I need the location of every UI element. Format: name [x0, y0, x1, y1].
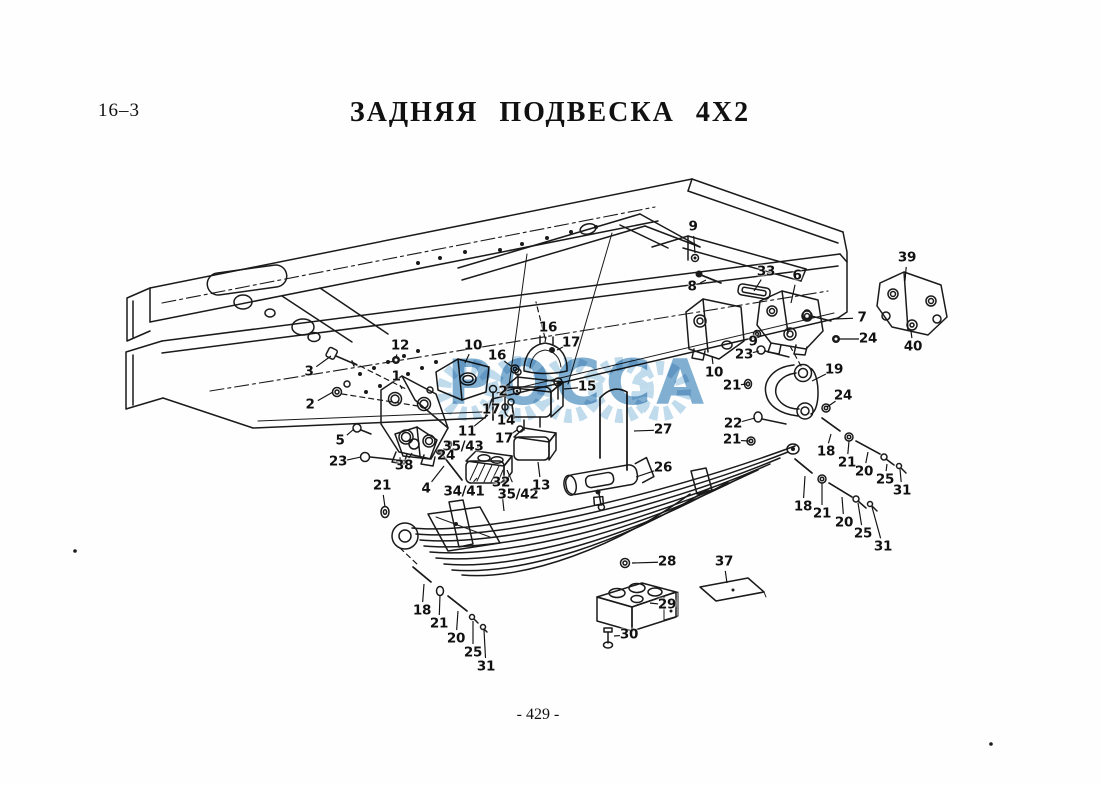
leader-line — [872, 507, 881, 538]
leader-line — [347, 429, 354, 435]
callout-label: 28 — [658, 555, 676, 569]
leader-line — [866, 452, 868, 463]
callout-label: 16 — [539, 321, 557, 335]
callout-label: 3 — [304, 365, 313, 379]
leader-line — [833, 318, 853, 319]
callout-label: 12 — [391, 339, 409, 353]
callout-label: 10 — [464, 339, 482, 353]
catalog-page: 16–3 ЗАДНЯЯ ПОДВЕСКА 4X2 — [0, 0, 1100, 785]
callout-label: 24 — [834, 389, 852, 403]
callout-label: 30 — [620, 628, 638, 642]
callout-label: 21 — [723, 433, 741, 447]
leader-line — [741, 384, 746, 385]
callout-label: 15 — [578, 380, 596, 394]
leader-line — [694, 236, 695, 253]
leader-line — [753, 351, 759, 353]
callout-label: 31 — [874, 540, 892, 554]
callout-label: 5 — [335, 434, 344, 448]
leader-line — [900, 469, 901, 482]
leader-line — [848, 441, 849, 454]
callout-label: 17 — [562, 336, 580, 350]
callout-label: 27 — [654, 423, 672, 437]
callout-label: 4 — [421, 482, 430, 496]
callout-label: 38 — [395, 459, 413, 473]
callout-label: 8 — [687, 280, 696, 294]
callout-label: 25 — [876, 473, 894, 487]
callout-label: 21 — [430, 617, 448, 631]
callout-label: 25 — [854, 527, 872, 541]
leader-line — [725, 571, 727, 583]
page-number: - 429 - — [0, 706, 1076, 724]
callout-label: 26 — [654, 461, 672, 475]
callout-label: 21 — [723, 379, 741, 393]
callout-label: 1 — [391, 370, 400, 384]
leader-line — [632, 562, 658, 563]
callout-label: 20 — [855, 465, 873, 479]
callout-label: 18 — [794, 500, 812, 514]
callout-label: 18 — [413, 604, 431, 618]
leader-line — [886, 464, 887, 471]
leader-line — [712, 356, 713, 364]
callout-label: 20 — [835, 516, 853, 530]
callout-label: 21 — [813, 507, 831, 521]
callout-label: 31 — [477, 660, 495, 674]
leader-line — [457, 611, 458, 630]
leader-line — [842, 497, 843, 514]
callout-label: 24 — [859, 332, 877, 346]
callout-label: 14 — [497, 414, 515, 428]
leader-line — [439, 595, 440, 615]
leader-line — [316, 356, 331, 367]
leader-line — [318, 392, 333, 401]
callout-leader-lines — [0, 0, 1100, 785]
leader-line — [636, 471, 654, 477]
leader-line — [905, 267, 906, 281]
leader-line — [634, 430, 654, 431]
leader-line — [564, 388, 578, 389]
leader-line — [742, 418, 755, 422]
callout-label: 24 — [437, 449, 455, 463]
callout-label: 39 — [898, 251, 916, 265]
leader-line — [812, 374, 826, 381]
leader-line — [545, 337, 546, 342]
callout-label: 23 — [329, 455, 347, 469]
callout-label: 19 — [825, 363, 843, 377]
leader-line — [484, 630, 486, 658]
callout-label: 2 — [305, 398, 314, 412]
callout-label: 29 — [658, 598, 676, 612]
callout-label: 17 — [495, 432, 513, 446]
leader-line — [650, 603, 658, 604]
leader-line — [754, 280, 761, 291]
leader-line — [347, 457, 361, 460]
leader-line — [804, 476, 805, 498]
leader-line — [828, 434, 831, 443]
callout-label: 9 — [688, 220, 697, 234]
callout-label: 37 — [715, 555, 733, 569]
leader-line — [465, 354, 469, 363]
callout-label: 20 — [447, 632, 465, 646]
callout-label: 2 — [498, 385, 507, 399]
leader-line — [400, 385, 402, 389]
callout-label: 21 — [838, 456, 856, 470]
callout-label: 16 — [488, 349, 506, 363]
leader-line — [396, 354, 397, 357]
callout-label: 13 — [532, 479, 550, 493]
leader-line — [700, 280, 706, 283]
callout-label: 22 — [724, 417, 742, 431]
leader-line — [432, 466, 444, 482]
callout-label: 23 — [735, 348, 753, 362]
leader-line — [383, 495, 385, 507]
callout-label: 31 — [893, 484, 911, 498]
callout-label: 6 — [792, 269, 801, 283]
leader-line — [791, 285, 795, 303]
callout-label: 40 — [904, 340, 922, 354]
leader-line — [423, 584, 424, 602]
callout-label: 11 — [458, 425, 476, 439]
callout-label: 7 — [857, 311, 866, 325]
callout-label: 21 — [373, 479, 391, 493]
leader-line — [474, 478, 477, 482]
callout-label: 33 — [757, 265, 775, 279]
callout-label: 10 — [705, 366, 723, 380]
callout-label: 18 — [817, 445, 835, 459]
leader-line — [538, 462, 540, 477]
callout-label: 34/41 — [443, 485, 484, 499]
leader-line — [858, 503, 862, 525]
leader-line — [911, 331, 912, 338]
